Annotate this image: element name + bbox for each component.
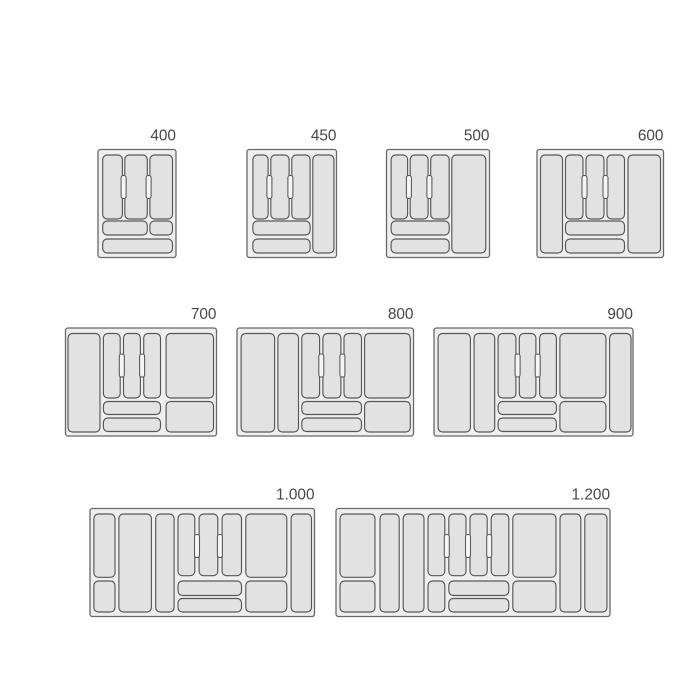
svg-text:700: 700 bbox=[191, 306, 217, 323]
svg-text:1.000: 1.000 bbox=[276, 486, 315, 503]
svg-text:450: 450 bbox=[311, 127, 337, 144]
svg-text:900: 900 bbox=[607, 306, 633, 323]
svg-text:600: 600 bbox=[638, 127, 664, 144]
svg-text:400: 400 bbox=[150, 127, 176, 144]
svg-text:1.200: 1.200 bbox=[571, 486, 610, 503]
svg-text:500: 500 bbox=[464, 127, 490, 144]
svg-text:800: 800 bbox=[388, 306, 414, 323]
